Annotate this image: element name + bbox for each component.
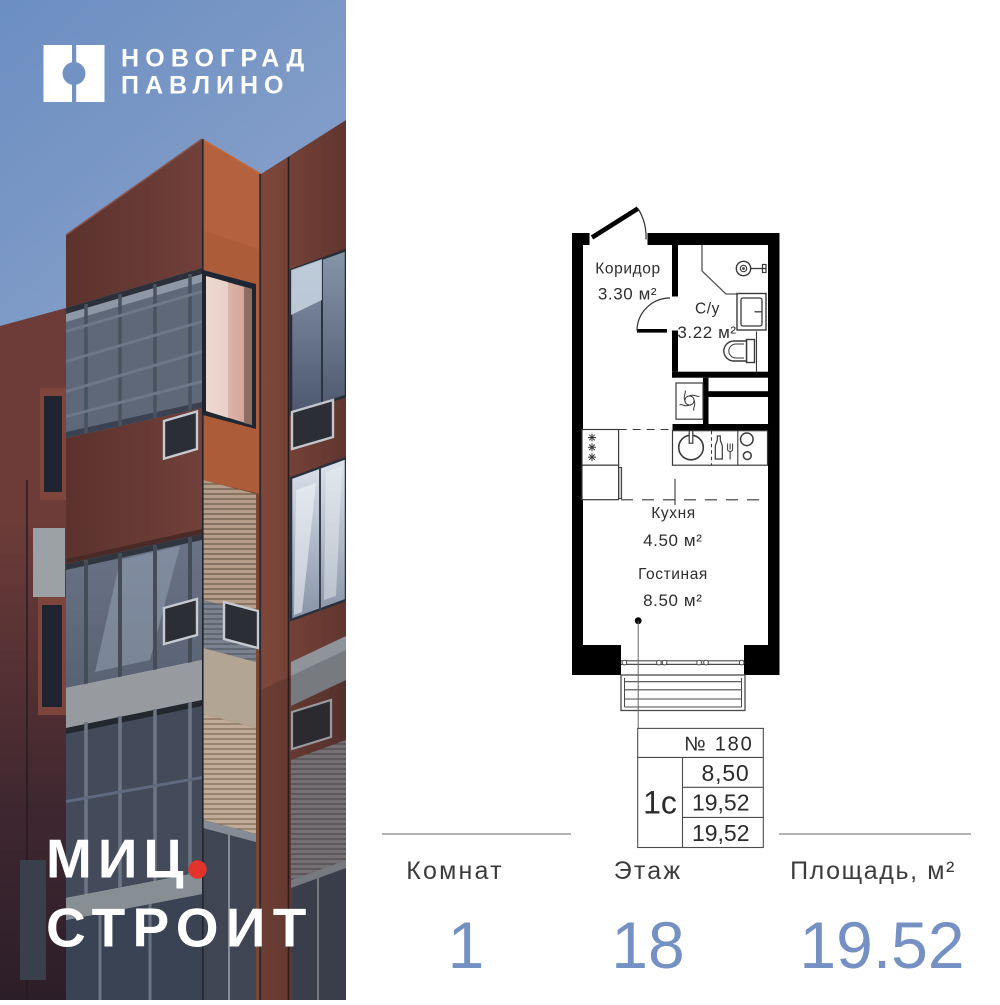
svg-text:4.50 м²: 4.50 м² <box>643 531 702 550</box>
svg-text:Коридор: Коридор <box>595 261 660 278</box>
svg-text:С/у: С/у <box>695 301 720 318</box>
svg-text:3.22 м²: 3.22 м² <box>677 323 736 342</box>
svg-text:19,52: 19,52 <box>692 790 750 816</box>
svg-text:19,52: 19,52 <box>692 820 750 846</box>
svg-text:8.50 м²: 8.50 м² <box>643 591 702 610</box>
svg-text:1с: 1с <box>643 784 677 820</box>
svg-text:№ 180: № 180 <box>684 734 753 756</box>
svg-text:8,50: 8,50 <box>702 760 750 786</box>
svg-text:3.30 м²: 3.30 м² <box>598 285 657 304</box>
svg-text:Кухня: Кухня <box>651 505 695 522</box>
svg-text:Гостиная: Гостиная <box>638 566 708 583</box>
